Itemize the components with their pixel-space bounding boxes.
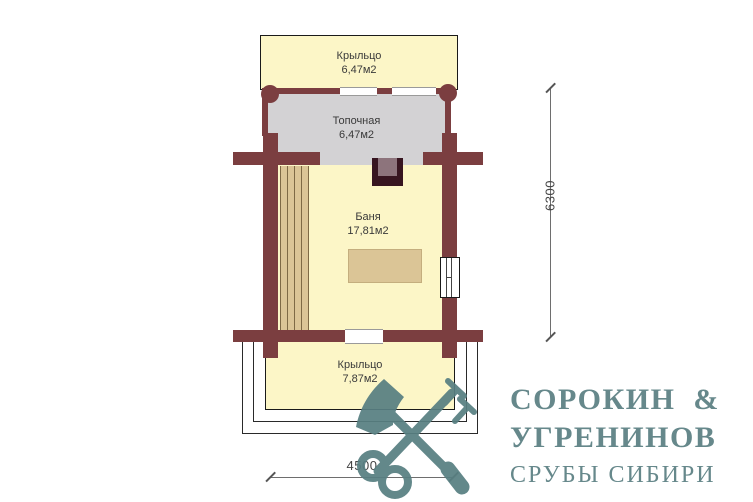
- dimension-value-vertical: 6300: [543, 173, 558, 219]
- room-porch-top: Крыльцо 6,47м2: [260, 35, 458, 90]
- door-opening-boiler: [340, 87, 377, 96]
- wall-stub-right: [442, 342, 457, 358]
- floor-plan-canvas: Крыльцо 6,47м2 Топочная 6,47м2 Баня 17,8…: [0, 0, 753, 502]
- axe-and-key-icon: [348, 363, 483, 502]
- room-name: Баня: [355, 210, 380, 224]
- room-name: Крыльцо: [337, 49, 382, 63]
- room-area: 6,47м2: [341, 63, 376, 77]
- bench-planks: [280, 166, 309, 330]
- window-sash-line: [446, 277, 452, 278]
- logo-line-2: УГРЕНИНОВ: [510, 419, 750, 457]
- door-opening-bath: [345, 329, 383, 344]
- stove: [372, 158, 403, 186]
- wall-stub-left: [263, 342, 278, 358]
- table: [348, 249, 422, 283]
- window-right-wall: [440, 257, 460, 298]
- log-end-left-icon: [261, 85, 279, 103]
- room-area: 17,81м2: [347, 224, 388, 238]
- logo-text: СОРОКИН & УГРЕНИНОВ СРУБЫ СИБИРИ: [510, 381, 750, 493]
- room-area: 6,47м2: [339, 128, 374, 142]
- logo-line-1: СОРОКИН &: [510, 381, 750, 419]
- room-bath-label: Баня 17,81м2: [318, 210, 418, 238]
- stove-firebox: [378, 158, 397, 176]
- wall-crossbar-left: [233, 152, 320, 165]
- window-opening-boiler: [392, 87, 436, 96]
- logo-line-3: СРУБЫ СИБИРИ: [510, 457, 750, 493]
- room-name: Топочная: [333, 114, 381, 128]
- axe-head: [356, 379, 404, 435]
- log-end-right-icon: [439, 84, 457, 102]
- wall-crossbar-right: [423, 152, 483, 165]
